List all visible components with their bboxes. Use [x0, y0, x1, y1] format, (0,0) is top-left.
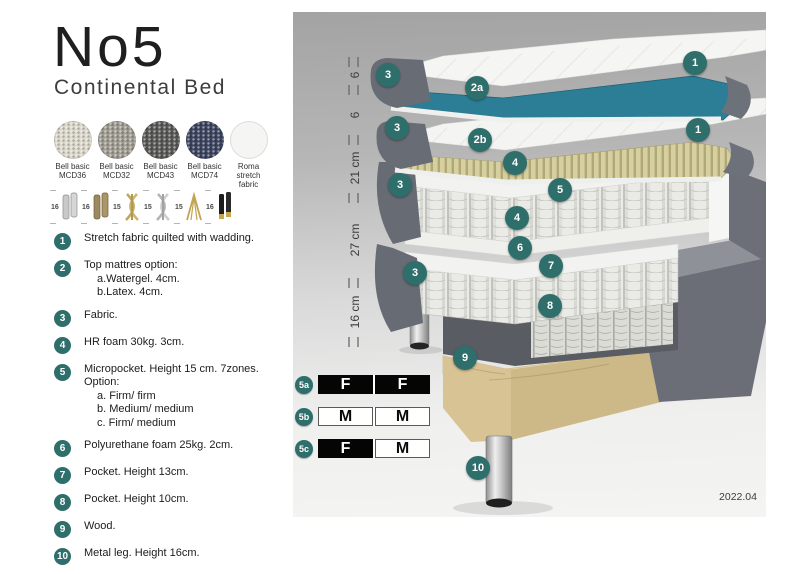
- list-item: 9 Wood.: [54, 520, 292, 538]
- list-item: 2 Top mattres option: a.Watergel. 4cm. b…: [54, 259, 292, 300]
- feature-number-badge: 9: [54, 521, 71, 538]
- leg-twist-silver-icon: [153, 191, 173, 223]
- callout-badge: 2a: [465, 76, 489, 100]
- metal-leg-front: [486, 436, 512, 508]
- leg-height-label: 16: [206, 204, 214, 211]
- page-title: No5: [53, 18, 167, 78]
- leg-twist-gold-icon: [122, 191, 142, 223]
- leg-option: 15: [113, 188, 144, 226]
- callout-badge: 3: [388, 173, 412, 197]
- fabric-swatch: Bell basicMCD74: [184, 121, 225, 189]
- info-panel: No5 Continental Bed Bell basicMCD36 Bell…: [0, 0, 293, 533]
- firmness-cell: F: [318, 375, 373, 394]
- feature-text: Polyurethane foam 25kg. 2cm.: [84, 439, 233, 457]
- leg-cylinder-silver-icon: [60, 191, 80, 223]
- fabric-code: MCD36: [52, 171, 93, 180]
- firmness-cell: M: [375, 407, 430, 426]
- list-item: 5 Micropocket. Height 15 cm. 7zones. Opt…: [54, 363, 292, 431]
- fabric-swatch: Bell basicMCD32: [96, 121, 137, 189]
- fabric-name: Bell basic: [140, 162, 181, 171]
- leg-height-label: 15: [175, 204, 183, 211]
- feature-subtext: b. Medium/ medium: [97, 403, 292, 417]
- fabric-swatch-circle: [54, 121, 92, 159]
- leg-option: 16: [51, 188, 82, 226]
- callout-badge: 1: [683, 51, 707, 75]
- firmness-row-badge: 5a: [295, 376, 313, 394]
- leg-height-label: 16: [51, 204, 59, 211]
- feature-text: Pocket. Height 10cm.: [84, 493, 189, 511]
- feature-number-badge: 8: [54, 494, 71, 511]
- callout-badge: 5: [548, 178, 572, 202]
- feature-subtext: b.Latex. 4cm.: [97, 286, 180, 300]
- fabric-code: MCD43: [140, 171, 181, 180]
- leg-height-label: 15: [144, 204, 152, 211]
- fabric-swatch: Bell basicMCD43: [140, 121, 181, 189]
- callout-badge: 4: [505, 206, 529, 230]
- leg-cylinder-bronze-icon: [91, 191, 111, 223]
- firmness-cell: F: [375, 375, 430, 394]
- callout-badge: 6: [508, 236, 532, 260]
- feature-subtext: a. Firm/ firm: [97, 390, 292, 404]
- feature-number-badge: 10: [54, 548, 71, 565]
- list-item: 7 Pocket. Height 13cm.: [54, 466, 292, 484]
- callout-badge: 7: [539, 254, 563, 278]
- firmness-row: 5c F M: [295, 439, 430, 458]
- top-mattress-layer: [371, 30, 766, 120]
- callout-badge: 2b: [468, 128, 492, 152]
- callout-badge: 3: [403, 261, 427, 285]
- fabric-code: MCD32: [96, 171, 137, 180]
- feature-list: 1 Stretch fabric quilted with wadding. 2…: [54, 232, 292, 574]
- dimension-label: 27 cm: [348, 224, 362, 257]
- feature-text: Micropocket. Height 15 cm. 7zones. Optio…: [84, 363, 292, 390]
- dimension-label: 6: [348, 72, 362, 79]
- leg-hairpin-gold-icon: [184, 191, 204, 223]
- list-item: 6 Polyurethane foam 25kg. 2cm.: [54, 439, 292, 457]
- callout-badge: 10: [466, 456, 490, 480]
- callout-badge: 9: [453, 346, 477, 370]
- fabric-name: Bell basic: [184, 162, 225, 171]
- fabric-name: Bell basic: [96, 162, 137, 171]
- callout-badge: 8: [538, 294, 562, 318]
- leg-option: 15: [175, 188, 206, 226]
- callout-badge: 1: [686, 118, 710, 142]
- list-item: 8 Pocket. Height 10cm.: [54, 493, 292, 511]
- fabric-name: Bell basic: [52, 162, 93, 171]
- feature-number-badge: 6: [54, 440, 71, 457]
- dimension-label: 6: [348, 112, 362, 119]
- bed-cutaway-photo: 6 6 21 cm 27 cm 16 cm 1 3 2a 1 3 2b 4 3 …: [293, 12, 766, 517]
- product-sheet: { "product": { "title": "No5", "subtitle…: [0, 0, 800, 533]
- list-item: 1 Stretch fabric quilted with wadding.: [54, 232, 292, 250]
- callout-badge: 4: [503, 151, 527, 175]
- fabric-swatch-row: Bell basicMCD36 Bell basicMCD32 Bell bas…: [52, 121, 269, 189]
- list-item: 3 Fabric.: [54, 309, 292, 327]
- fabric-swatch: Bell basicMCD36: [52, 121, 93, 189]
- callout-badge: 3: [376, 63, 400, 87]
- fabric-swatch-circle: [230, 121, 268, 159]
- feature-number-badge: 3: [54, 310, 71, 327]
- leg-option: 16: [82, 188, 113, 226]
- feature-number-badge: 2: [54, 260, 71, 277]
- feature-text: Top mattres option:: [84, 259, 180, 273]
- firmness-cell: F: [318, 439, 373, 458]
- dimension-label: 16 cm: [348, 296, 362, 329]
- feature-number-badge: 4: [54, 337, 71, 354]
- leg-height-label: 15: [113, 204, 121, 211]
- feature-text: Wood.: [84, 520, 116, 538]
- feature-subtext: a.Watergel. 4cm.: [97, 273, 180, 287]
- firmness-row-badge: 5b: [295, 408, 313, 426]
- leg-option: 15: [144, 188, 175, 226]
- fabric-code: stretch fabric: [228, 171, 269, 189]
- firmness-cell: M: [375, 439, 430, 458]
- leg-height-label: 16: [82, 204, 90, 211]
- feature-subtext: c. Firm/ medium: [97, 417, 292, 431]
- firmness-row: 5b M M: [295, 407, 430, 426]
- leg-options-row: 16 16 15 15: [51, 188, 237, 226]
- feature-text: Fabric.: [84, 309, 118, 327]
- firmness-row: 5a F F: [295, 375, 430, 394]
- firmness-table: 5a F F 5b M M 5c F M: [295, 375, 430, 471]
- page-subtitle: Continental Bed: [54, 76, 226, 100]
- feature-text: HR foam 30kg. 3cm.: [84, 336, 184, 354]
- callout-badge: 3: [385, 116, 409, 140]
- fabric-code: MCD74: [184, 171, 225, 180]
- fabric-swatch: Romastretch fabric: [228, 121, 269, 189]
- fabric-name: Roma: [228, 162, 269, 171]
- fabric-swatch-circle: [98, 121, 136, 159]
- fabric-swatch-circle: [142, 121, 180, 159]
- fabric-swatch-circle: [186, 121, 224, 159]
- feature-number-badge: 5: [54, 364, 71, 381]
- firmness-cell: M: [318, 407, 373, 426]
- feature-text: Pocket. Height 13cm.: [84, 466, 189, 484]
- feature-number-badge: 1: [54, 233, 71, 250]
- version-label: 2022.04: [719, 491, 757, 503]
- dimension-label: 21 cm: [348, 152, 362, 185]
- firmness-row-badge: 5c: [295, 440, 313, 458]
- feature-number-badge: 7: [54, 467, 71, 484]
- feature-text: Metal leg. Height 16cm.: [84, 547, 200, 565]
- leg-cylinder-black-gold-icon: [215, 191, 235, 223]
- list-item: 10 Metal leg. Height 16cm.: [54, 547, 292, 565]
- list-item: 4 HR foam 30kg. 3cm.: [54, 336, 292, 354]
- feature-text: Stretch fabric quilted with wadding.: [84, 232, 254, 250]
- leg-option: 16: [206, 188, 237, 226]
